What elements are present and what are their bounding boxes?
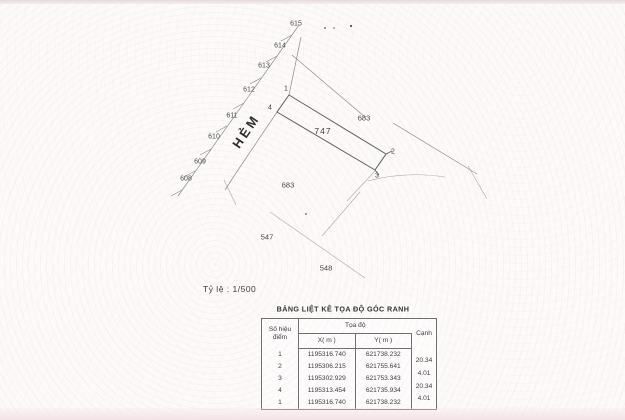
- cell-y: 621738.232: [355, 349, 412, 362]
- cell-x: 1195316.740: [299, 397, 356, 410]
- table-row: 3 1195302.929 621753.343: [262, 373, 437, 385]
- table-row: 4 1195313.454 621735.934: [262, 385, 437, 397]
- cadastral-sheet: 615 614 613 612 611 610 609 608 HẺM 747 …: [0, 0, 625, 420]
- alley-left-line: [178, 25, 299, 196]
- corner-label-2: 2: [391, 149, 395, 156]
- alley-right-upper-line: [289, 37, 301, 95]
- cell-y: 621738.232: [355, 397, 412, 410]
- edge-length-value: 20.34: [412, 358, 436, 365]
- cell-point: 2: [262, 361, 299, 373]
- area-label-547: 547: [261, 233, 274, 241]
- cell-x: 1195306.215: [299, 361, 356, 373]
- parcel-label-610: 610: [208, 134, 220, 141]
- cell-point: 4: [262, 385, 299, 397]
- boundary-683-line: [292, 55, 365, 117]
- parcel-label-613: 613: [258, 63, 270, 70]
- cell-y: 621735.934: [355, 385, 412, 397]
- cell-x: 1195302.929: [299, 373, 356, 385]
- table-row: 1 1195316.740 621738.232 20.34 4.01 20.3…: [262, 349, 437, 362]
- edge-length-value: 20.34: [412, 384, 436, 391]
- edge-length-column: 20.34 4.01 20.34 4.01: [412, 349, 437, 410]
- right-diagonal-line: [393, 123, 477, 174]
- survey-drawing: [0, 0, 625, 310]
- cell-y: 621753.343: [355, 373, 412, 385]
- header-y-col: Y( m ): [355, 334, 412, 349]
- parcel-label-611: 611: [226, 113, 237, 120]
- parcel-label-615: 615: [290, 21, 302, 28]
- table-row: 1 1195316.740 621738.232: [262, 397, 437, 410]
- parcel-label-609: 609: [194, 159, 206, 166]
- cell-point: 1: [262, 397, 299, 410]
- area-label-548: 548: [320, 264, 333, 272]
- area-label-683-bottom: 683: [282, 181, 295, 189]
- header-point-line1: Số hiệu: [262, 326, 298, 334]
- cell-point: 3: [262, 373, 299, 385]
- survey-dots: [305, 25, 352, 215]
- cell-y: 621755.641: [355, 361, 412, 373]
- parcel-label-614: 614: [274, 43, 286, 50]
- cell-point: 1: [262, 349, 299, 362]
- header-point-line2: điểm: [262, 334, 298, 342]
- table-title: BẢNG LIỆT KÊ TỌA ĐỘ GÓC RANH: [277, 305, 410, 314]
- header-coord-group: Tọa độ: [299, 319, 412, 334]
- corner-label-1: 1: [284, 86, 288, 93]
- parcel-label-608: 608: [180, 176, 192, 183]
- corner-label-4: 4: [268, 105, 272, 112]
- edge-length-value: 4.01: [412, 371, 436, 378]
- parcel-label-612: 612: [243, 87, 255, 94]
- header-x-col: X( m ): [299, 334, 356, 349]
- header-edge-col: Cạnh: [412, 319, 437, 349]
- table-row: 2 1195306.215 621755.641: [262, 361, 437, 373]
- scale-label: Tỷ lệ : 1/500: [203, 284, 256, 294]
- corner-label-3: 3: [375, 173, 379, 180]
- edge-length-value: 4.01: [412, 396, 436, 403]
- cell-x: 1195313.454: [299, 385, 356, 397]
- header-point-col: Số hiệu điểm: [262, 319, 299, 349]
- coordinate-table: Số hiệu điểm Tọa độ Cạnh X( m ) Y( m ) 1…: [261, 318, 437, 410]
- plot-number: 747: [314, 127, 331, 136]
- area-label-683-right: 683: [358, 114, 371, 122]
- cell-x: 1195316.740: [299, 349, 356, 362]
